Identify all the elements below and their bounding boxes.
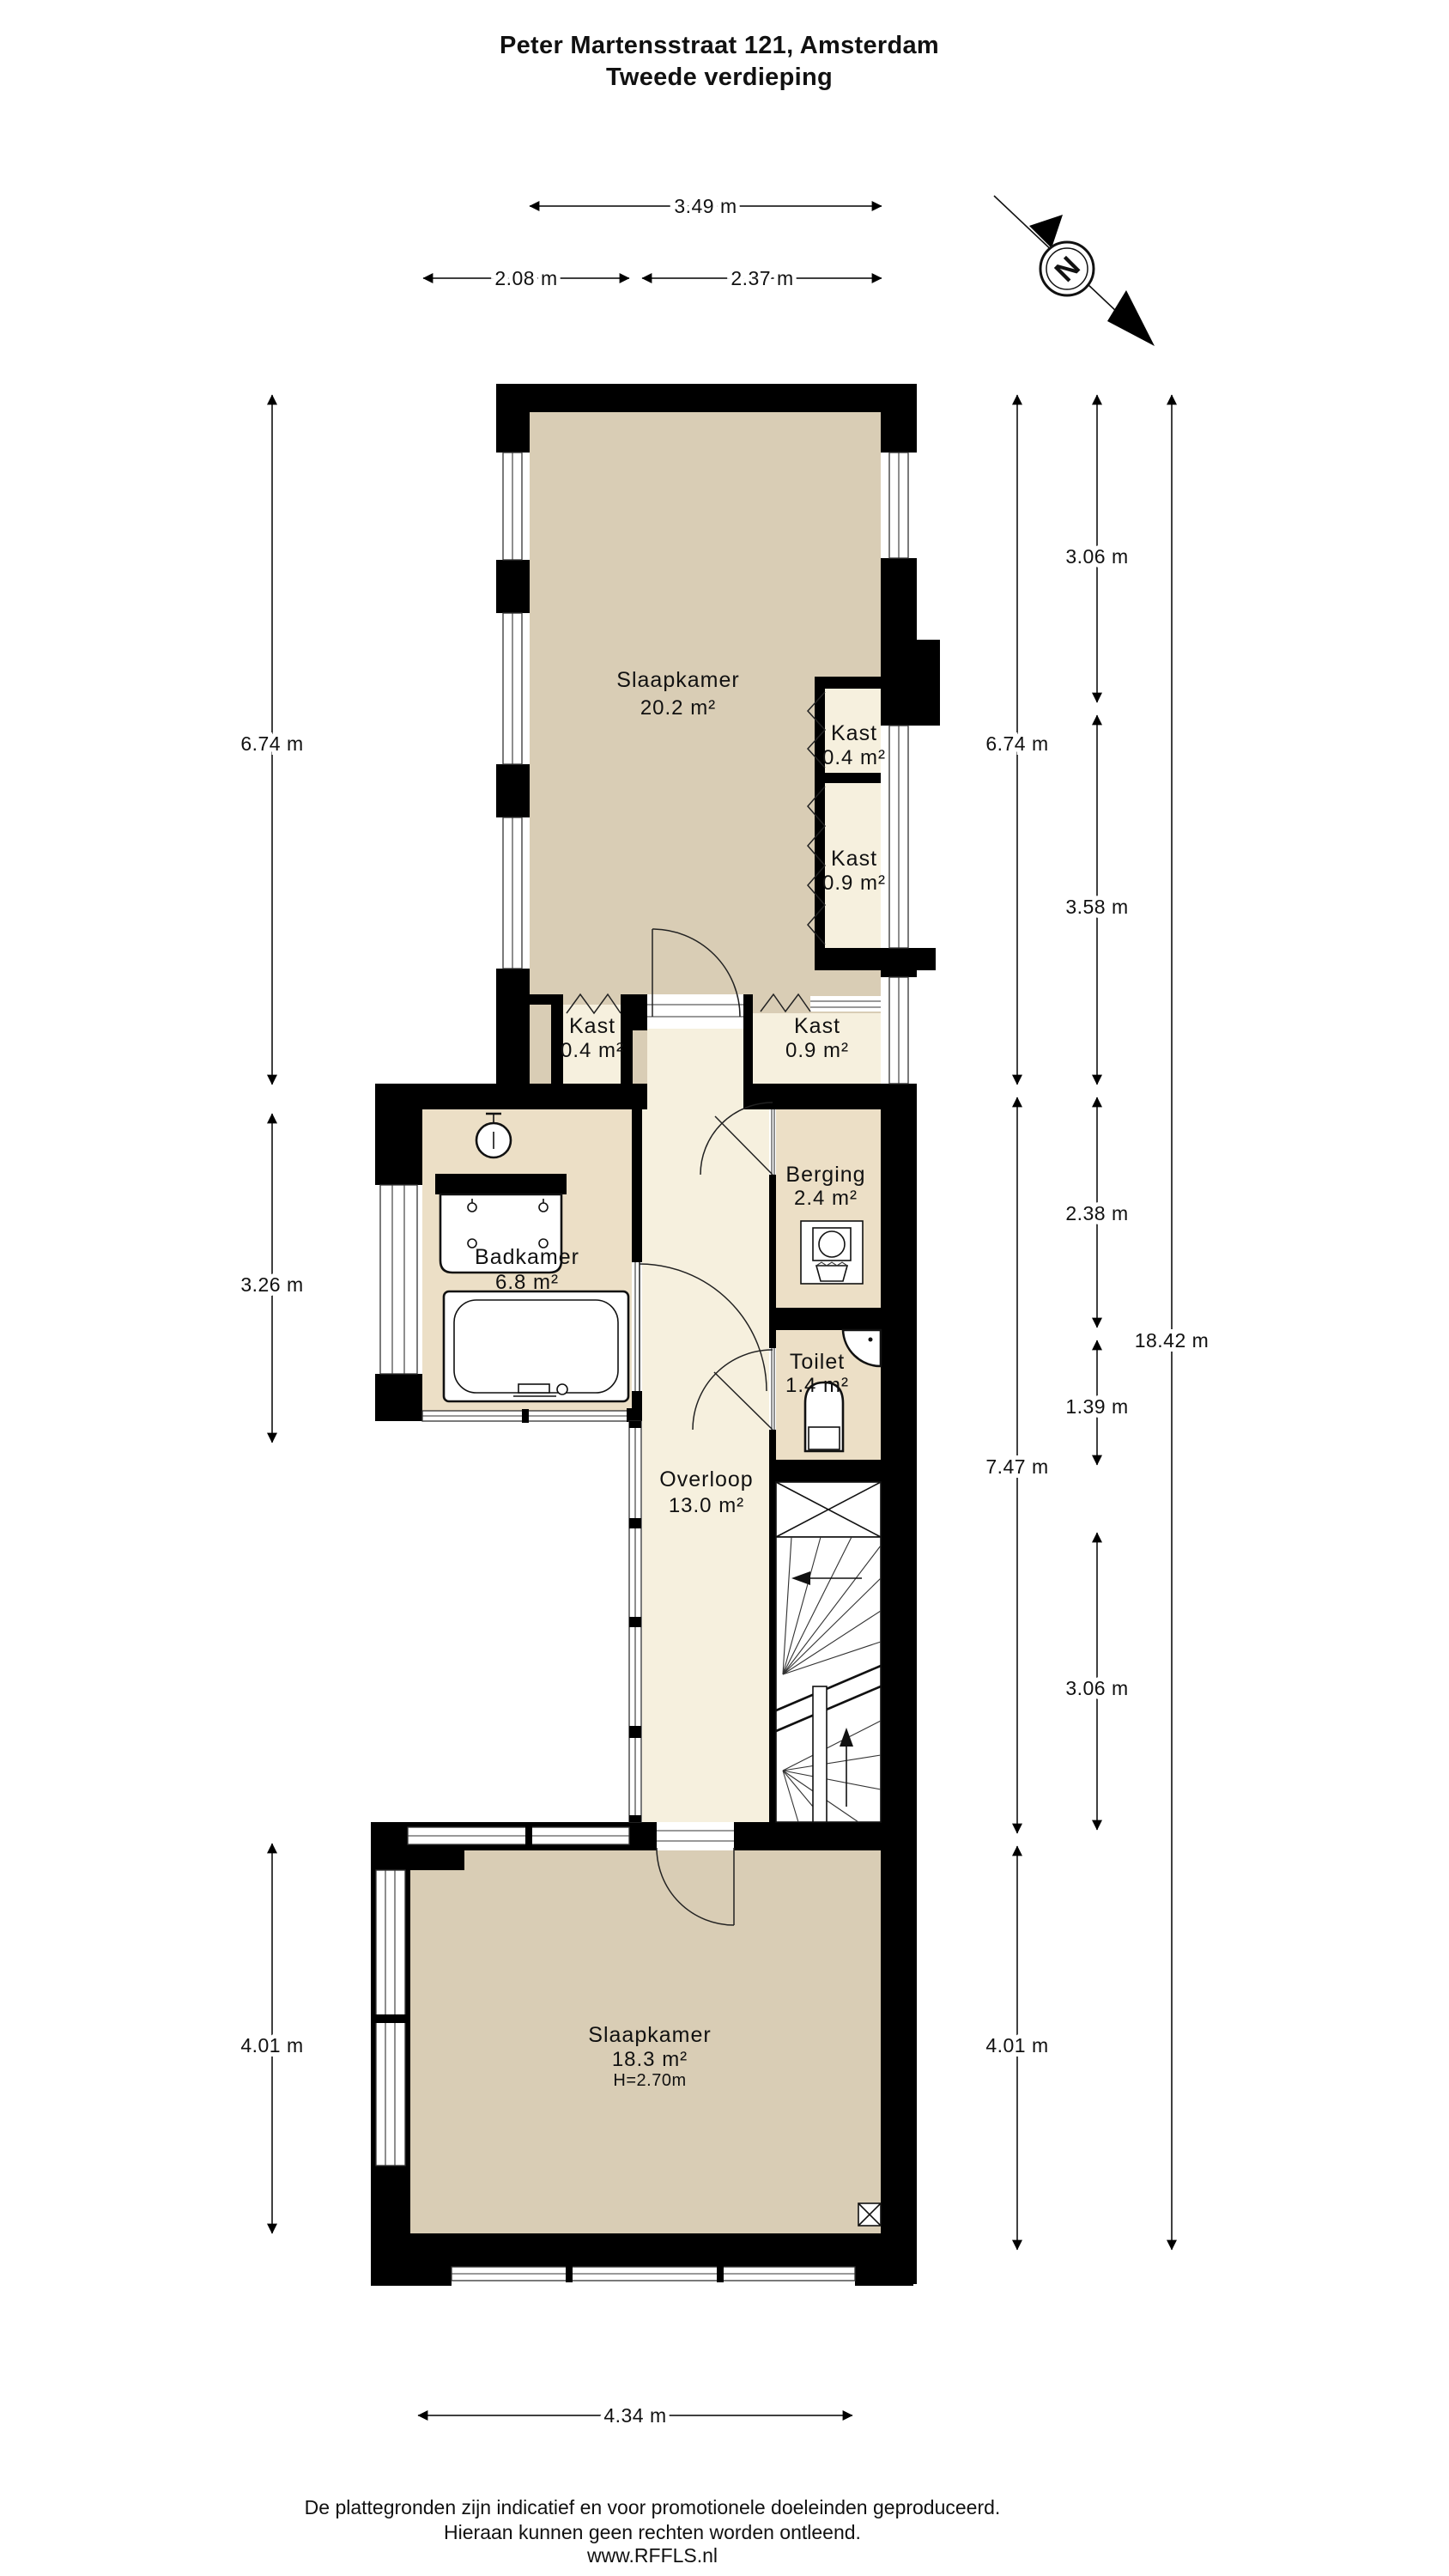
bathtub-icon [444,1291,628,1401]
dim-right-middle-1: 3.58 m [1065,896,1128,918]
window [422,1408,641,1423]
room-area-kast-right: 0.9 m² [822,872,886,895]
room-label-kast-left-lower: Kast [569,1014,615,1038]
window [503,453,522,969]
room-area-toilet: 1.4 m² [785,1374,849,1397]
room-label-storage: Berging [785,1163,865,1187]
room-label-kast-right: Kast [831,847,877,871]
dim-right-middle-0: 3.06 m [1065,545,1128,568]
dim-right-inner-0: 6.74 m [985,732,1048,755]
dim-left-0: 6.74 m [240,732,303,755]
room-label-kast-right-upper: Kast [831,721,877,745]
room-label-kast-right-lower: Kast [794,1014,840,1038]
dim-top-1: 2.08 m [494,267,557,289]
dim-top-0: 3.49 m [674,195,737,217]
dim-bottom-0: 4.34 m [603,2404,666,2427]
vent-icon [858,2203,881,2226]
room-area-storage: 2.4 m² [794,1187,858,1210]
room-area-kast-right-upper: 0.4 m² [822,746,886,769]
shaft-icon [776,1482,881,1537]
footer-line1: De plattegronden zijn indicatief en voor… [305,2496,1001,2518]
window [371,1870,410,2166]
room-area-kast-right-lower: 0.9 m² [785,1039,849,1062]
room-area-upper-bedroom: 20.2 m² [640,696,716,720]
page-title-line2: Tweede verdieping [606,64,833,91]
window [889,453,908,1084]
floor-plan: Peter Martensstraat 121, Amsterdam Tweed… [0,0,1449,2576]
stairs-icon [776,1537,881,1822]
dim-right-middle-4: 3.06 m [1065,1677,1128,1699]
dim-right-middle-2: 2.38 m [1065,1202,1128,1224]
room-area-landing: 13.0 m² [669,1494,744,1517]
window [408,1826,629,1846]
footer-website: www.RFFLS.nl [586,2544,718,2567]
dim-right-outer-0: 18.42 m [1135,1329,1210,1352]
room-area-kast-left-lower: 0.4 m² [561,1039,624,1062]
page-title-line1: Peter Martensstraat 121, Amsterdam [500,32,939,59]
window [452,2265,855,2282]
dim-right-middle-3: 1.39 m [1065,1395,1128,1418]
room-label-upper-bedroom: Slaapkamer [616,668,739,692]
room-area-lower-bedroom: 18.3 m² [612,2048,688,2071]
window [629,1421,641,1822]
washing-machine-icon [801,1221,863,1284]
room-landing [642,1109,769,1822]
dim-left-2: 4.01 m [240,2034,303,2057]
compass-icon: N [994,196,1155,346]
room-label-lower-bedroom: Slaapkamer [588,2023,711,2047]
footer-line2: Hieraan kunnen geen rechten worden ontle… [444,2521,861,2543]
dim-right-inner-1: 7.47 m [985,1455,1048,1478]
dim-top-2: 2.37 m [731,267,793,289]
room-height-lower-bedroom: H=2.70m [613,2071,686,2090]
window [380,1185,417,1374]
room-label-bathroom: Badkamer [475,1245,579,1269]
dim-right-inner-2: 4.01 m [985,2034,1048,2057]
footer: De plattegronden zijn indicatief en voor… [305,2496,1001,2567]
room-label-toilet: Toilet [790,1350,845,1374]
room-label-landing: Overloop [659,1467,753,1492]
dim-left-1: 3.26 m [240,1273,303,1296]
door-niche [647,1027,743,1109]
room-area-bathroom: 6.8 m² [495,1271,559,1294]
